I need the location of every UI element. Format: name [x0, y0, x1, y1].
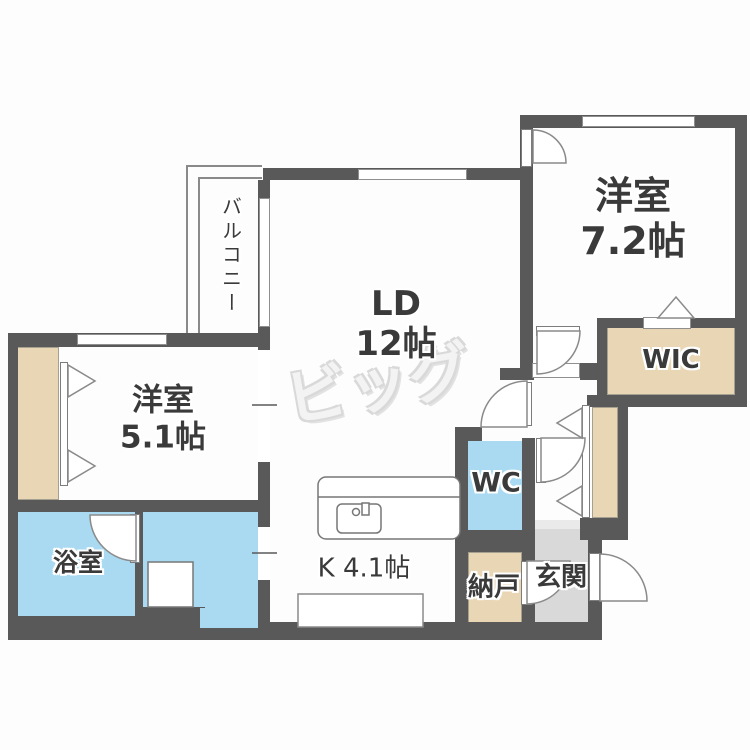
- label-toilet: WC: [471, 468, 521, 499]
- door-arc-bedroom: [537, 331, 580, 374]
- living-name: LD: [355, 284, 436, 324]
- folding-door-marker: [68, 450, 95, 482]
- label-bedroom-left: 洋室 5.1帖: [120, 382, 206, 455]
- label-entrance: 玄関: [535, 557, 587, 594]
- label-balcony: バルコニー: [217, 196, 246, 316]
- folding-door-marker: [68, 365, 95, 397]
- bedroom-left-size: 5.1帖: [120, 419, 206, 456]
- faucet-tap-icon: [362, 503, 369, 515]
- label-living: LD 12帖: [355, 284, 436, 364]
- floorplan-canvas: ビッグ 洋室 7.2帖 LD 12帖 洋室 5.1帖 バルコニー WIC 浴室 …: [0, 0, 750, 750]
- folding-door-marker: [658, 297, 694, 318]
- label-wic: WIC: [642, 345, 699, 375]
- door-arc-entrance: [600, 554, 647, 601]
- bedroom-left-name: 洋室: [120, 382, 206, 419]
- bedroom-right-name: 洋室: [580, 174, 685, 219]
- bedroom-right-size: 7.2帖: [580, 219, 685, 264]
- kitchen-lower-counter: [298, 594, 423, 627]
- door-arc-toilet: [481, 381, 527, 427]
- door-arc-bedroom-top: [533, 130, 566, 163]
- door-arc-hall: [541, 438, 585, 482]
- kitchen-sink: [337, 504, 381, 533]
- label-kitchen: K 4.1帖: [318, 548, 411, 585]
- living-size: 12帖: [355, 324, 436, 364]
- washing-machine-pan: [148, 562, 193, 607]
- folding-door-marker: [557, 486, 582, 516]
- folding-door-marker: [557, 408, 582, 438]
- label-storage: 納戸: [468, 567, 520, 604]
- label-bath: 浴室: [53, 543, 103, 579]
- label-bedroom-right: 洋室 7.2帖: [580, 174, 685, 264]
